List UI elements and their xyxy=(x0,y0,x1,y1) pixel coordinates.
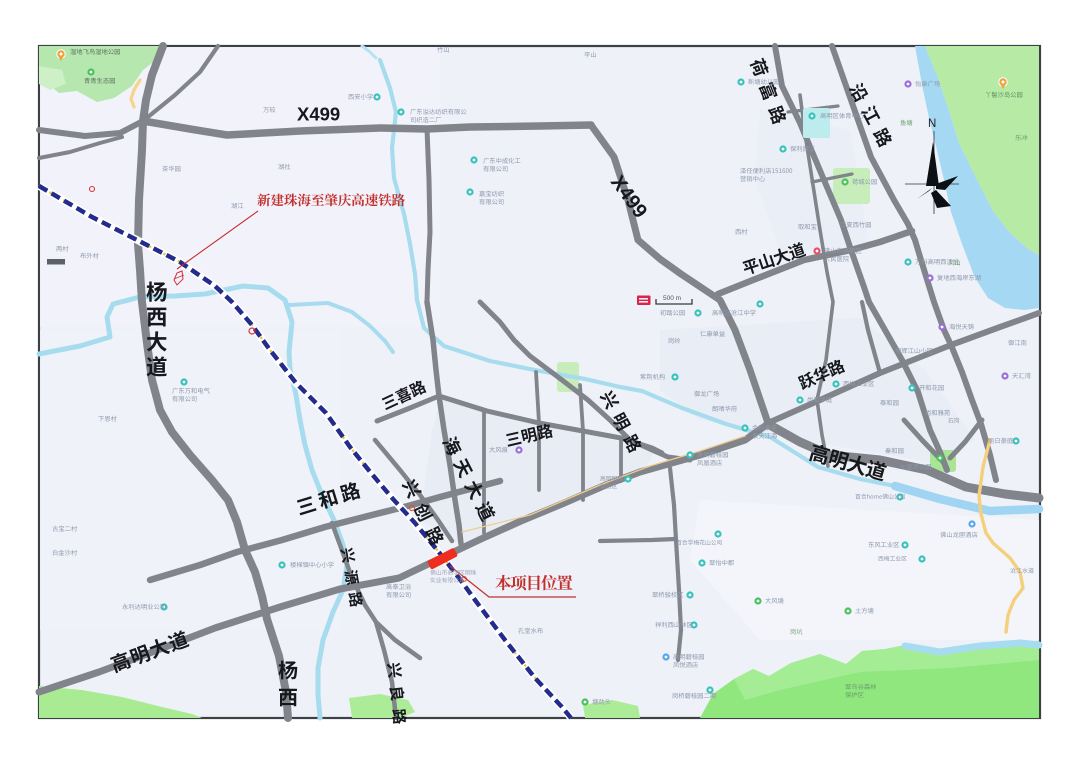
svg-text:N: N xyxy=(928,118,936,130)
svg-text:500 m: 500 m xyxy=(663,295,681,302)
svg-text:X499: X499 xyxy=(297,103,340,124)
